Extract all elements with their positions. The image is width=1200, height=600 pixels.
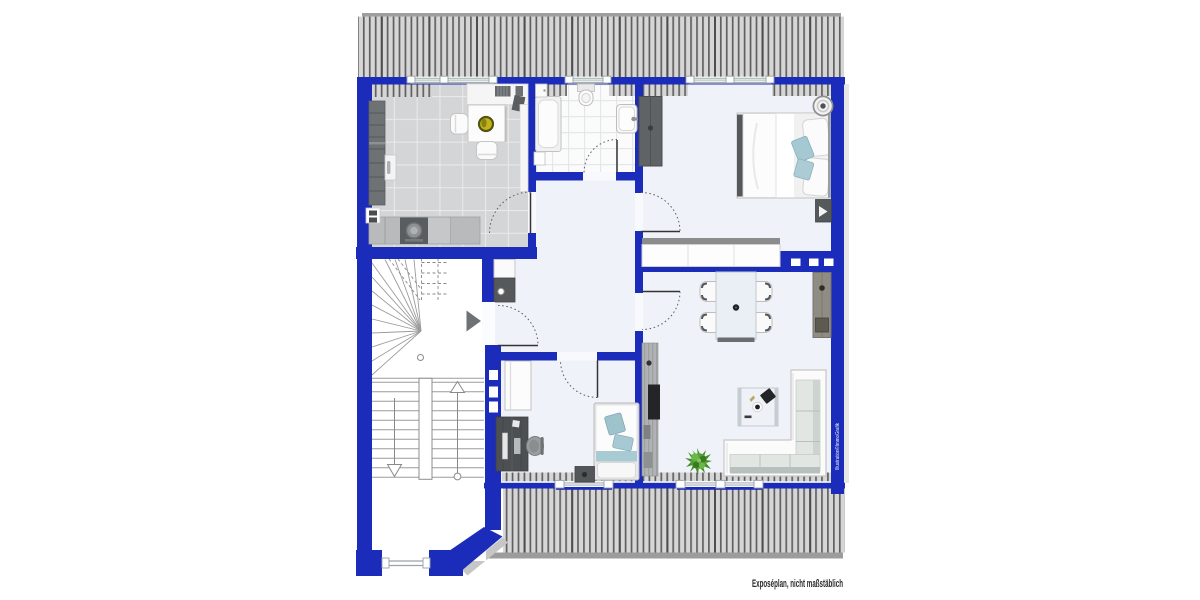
svg-text:Exposéplan, nicht maßstäblich: Exposéplan, nicht maßstäblich — [752, 578, 843, 590]
svg-text:Illustration©ImmoGrafik: Illustration©ImmoGrafik — [834, 423, 841, 470]
